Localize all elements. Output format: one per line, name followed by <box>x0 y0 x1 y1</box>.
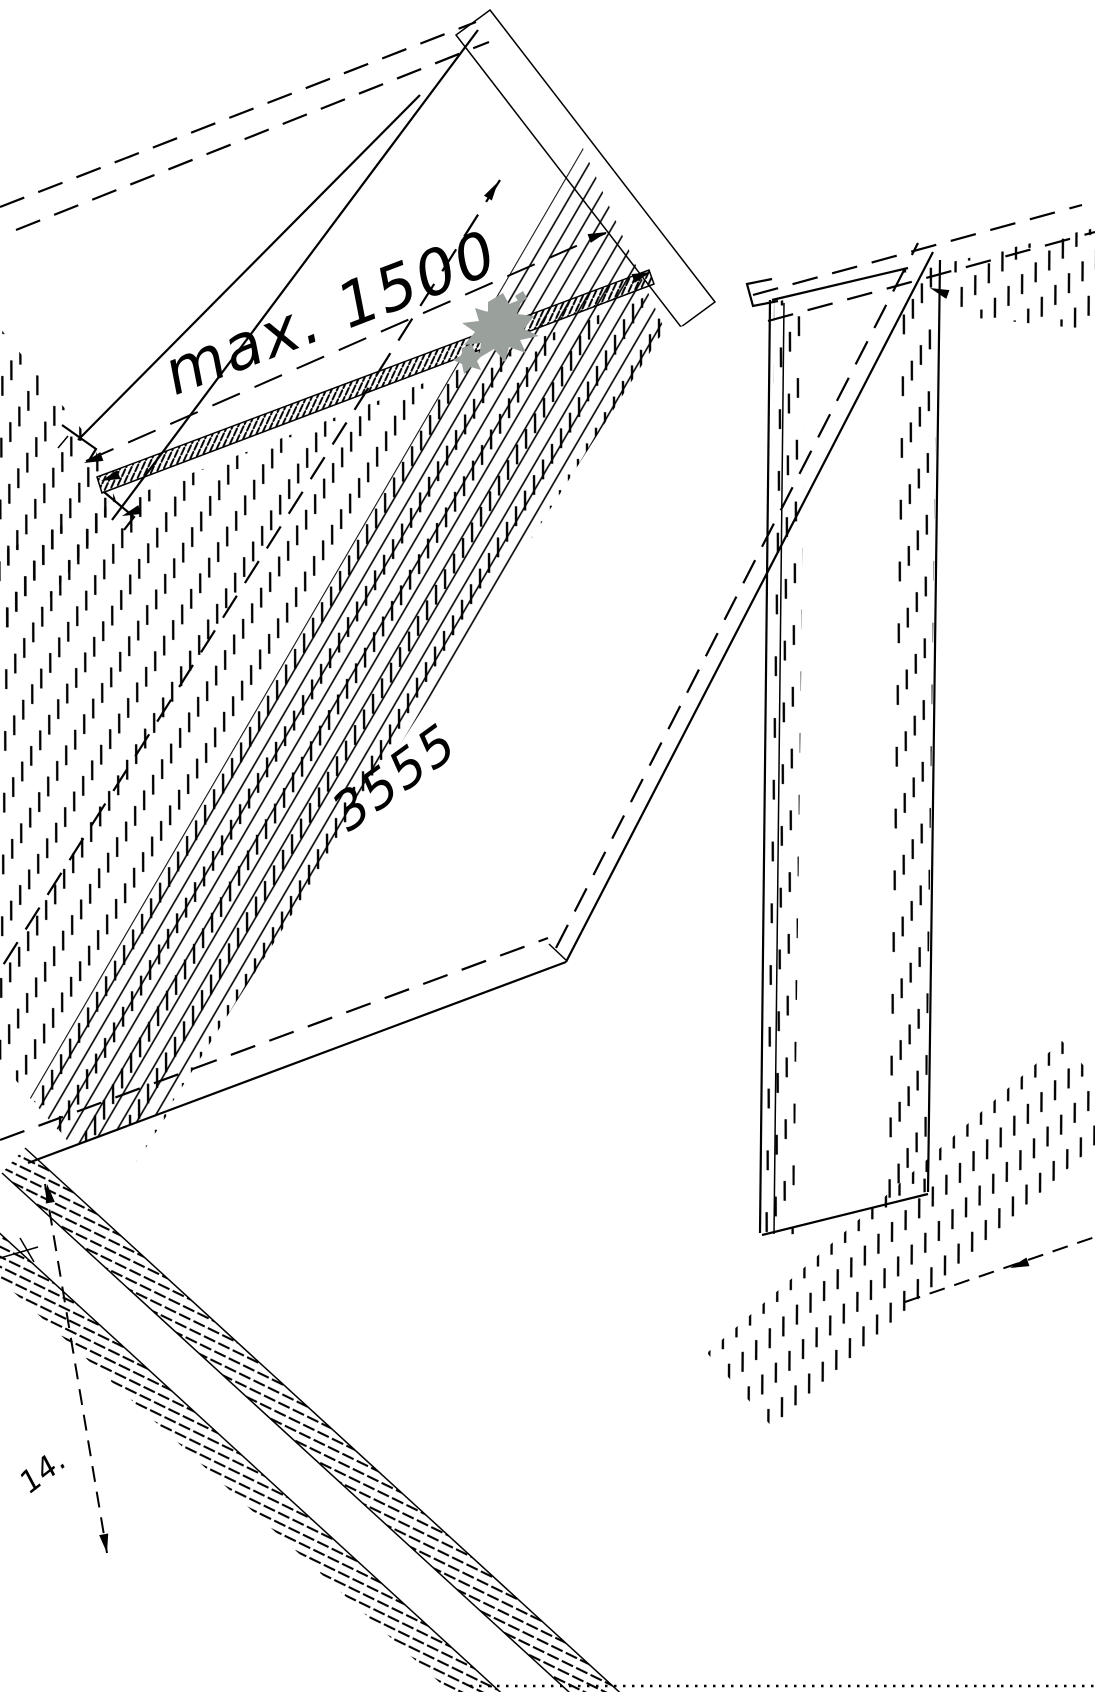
isometric-assembly-drawing: 3555 max. 1500 <box>0 0 1095 1692</box>
phantom-outline-line <box>16 42 489 230</box>
right-panel-top-corner-hatch <box>952 228 1095 330</box>
technical-drawing-sheet: 3555 max. 1500 <box>0 0 1095 1692</box>
bottom-left-strip-edge <box>25 1148 628 1692</box>
bottom-left-strip-edge <box>0 1206 570 1692</box>
bottom-left-strip-hatch <box>2 1148 628 1692</box>
bottom-left-panel: 14. <box>0 1148 628 1692</box>
dimension-arrowhead-icon <box>99 1533 111 1553</box>
dimension-text-14: 14. <box>15 1440 72 1502</box>
phantom-outline-line <box>0 22 476 207</box>
bottom-left-strip-hatch <box>0 1206 570 1692</box>
